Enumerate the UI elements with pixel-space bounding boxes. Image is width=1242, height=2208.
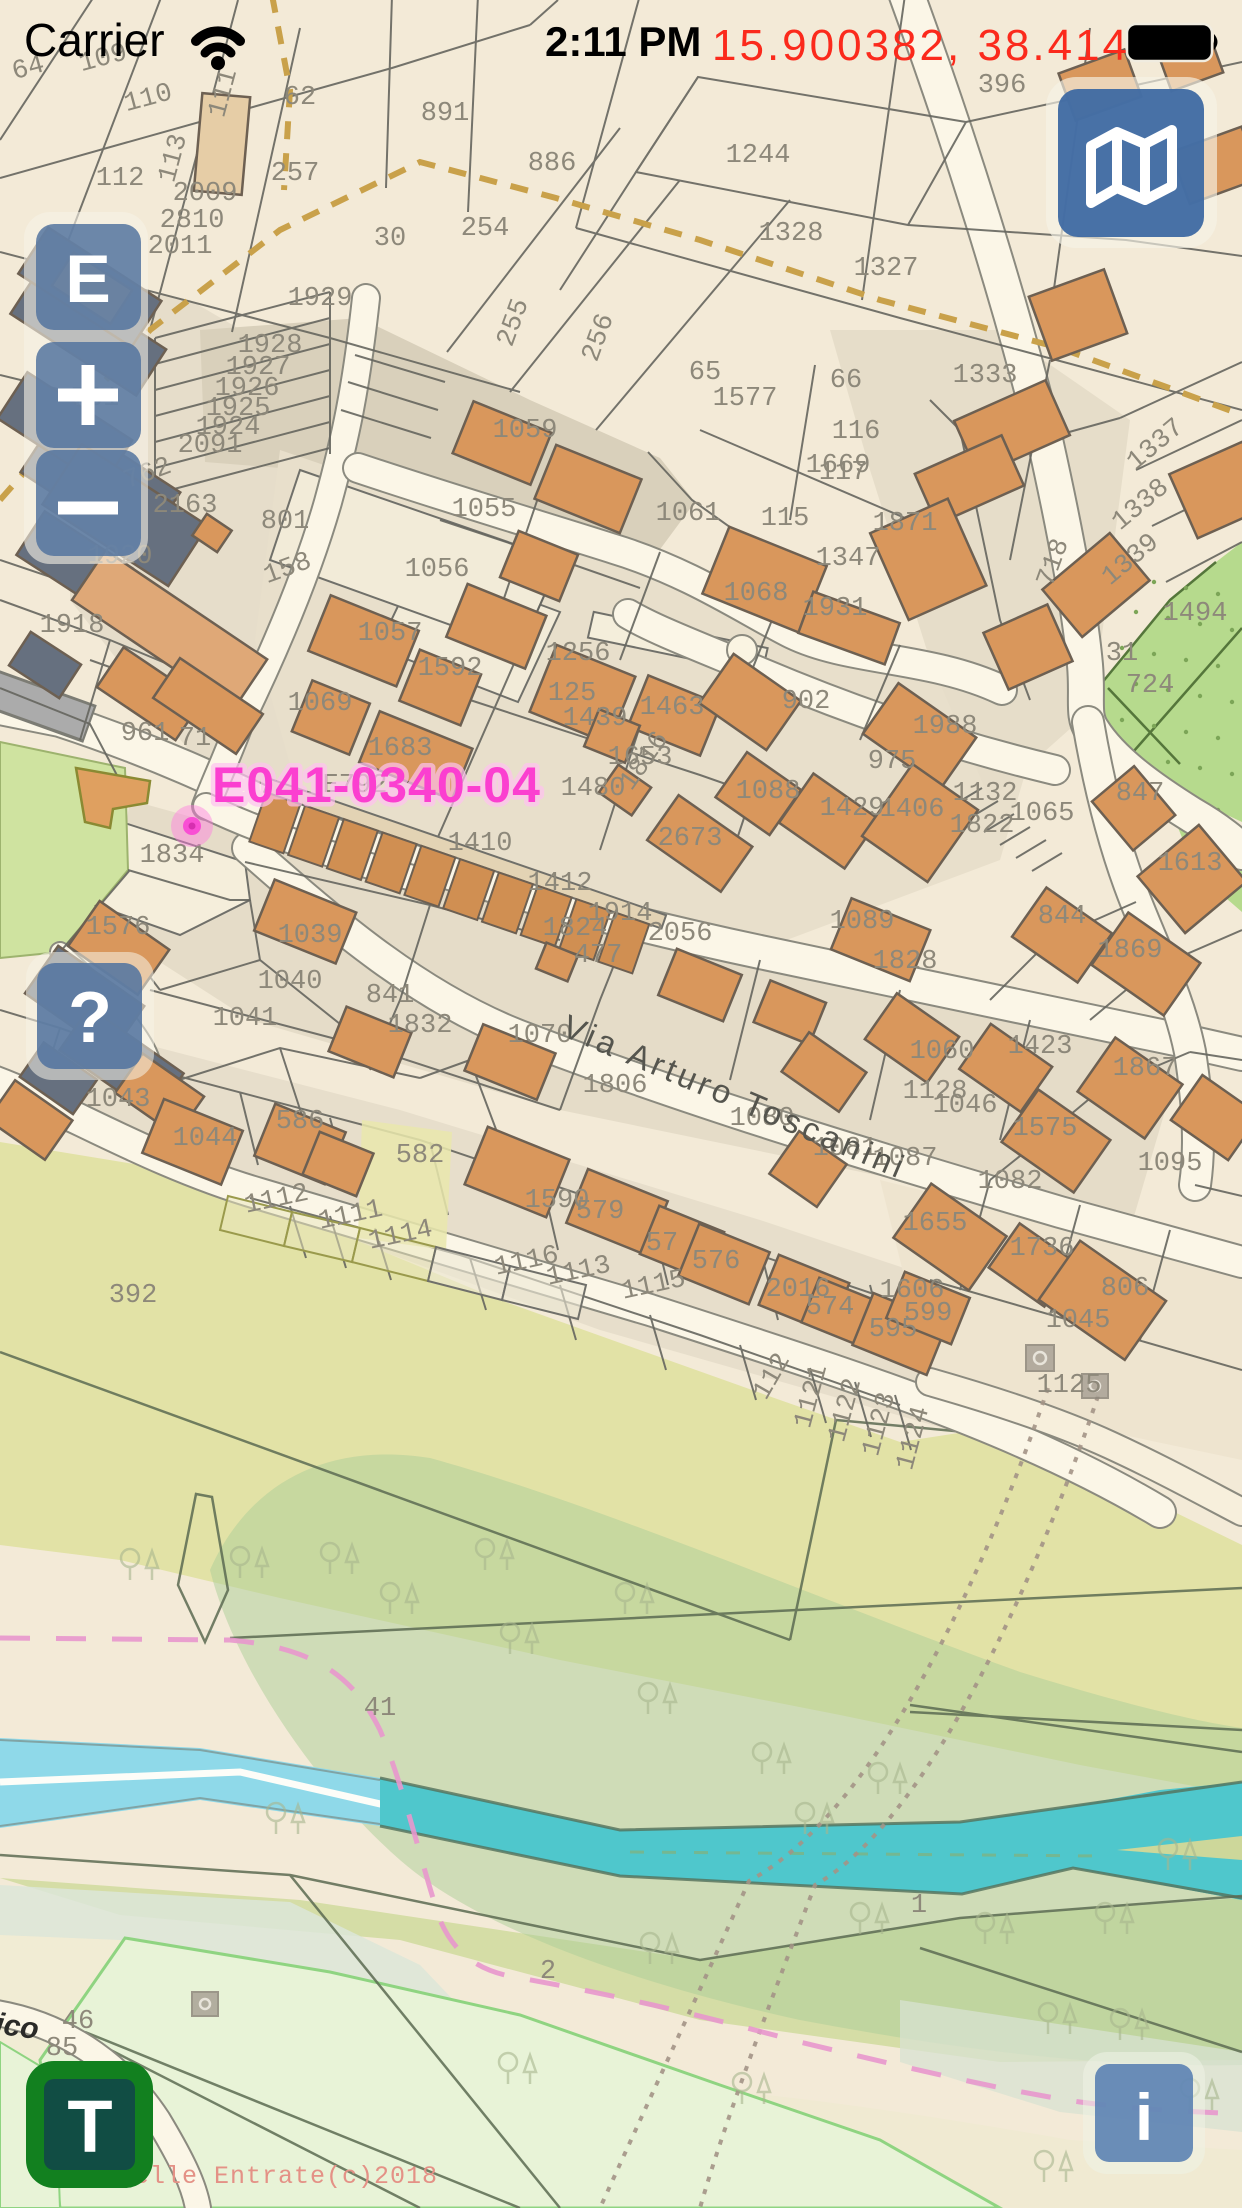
svg-text:85: 85 (46, 2034, 78, 2064)
svg-text:1244: 1244 (726, 141, 791, 171)
svg-text:257: 257 (271, 159, 320, 189)
svg-text:806: 806 (1101, 1274, 1150, 1304)
svg-text:115: 115 (761, 504, 810, 534)
svg-text:1736: 1736 (1010, 1234, 1075, 1264)
svg-text:1132: 1132 (953, 779, 1018, 809)
svg-text:1055: 1055 (452, 495, 517, 525)
svg-text:844: 844 (1038, 902, 1087, 932)
svg-text:1918: 1918 (40, 611, 105, 641)
svg-text:1088: 1088 (736, 777, 801, 807)
svg-text:1575: 1575 (1013, 1114, 1078, 1144)
svg-text:1931: 1931 (803, 594, 868, 624)
svg-text:116: 116 (832, 417, 881, 447)
svg-text:1463: 1463 (640, 693, 705, 723)
svg-text:66: 66 (830, 366, 862, 396)
svg-text:2163: 2163 (153, 491, 218, 521)
svg-text:41: 41 (364, 1694, 396, 1724)
svg-text:1577: 1577 (713, 384, 778, 414)
svg-text:1256: 1256 (546, 639, 611, 669)
svg-text:62: 62 (284, 83, 316, 113)
svg-text:2011: 2011 (148, 232, 213, 262)
svg-text:579: 579 (576, 1197, 625, 1227)
svg-text:841: 841 (366, 981, 415, 1011)
svg-text:1669: 1669 (806, 451, 871, 481)
svg-text:1039: 1039 (278, 921, 343, 951)
svg-text:961: 961 (121, 719, 170, 749)
svg-text:801: 801 (261, 507, 310, 537)
svg-text:?: ? (68, 978, 112, 1058)
svg-text:1429: 1429 (820, 794, 885, 824)
svg-text:586: 586 (276, 1107, 325, 1137)
svg-text:ico: ico (0, 2007, 41, 2046)
svg-text:2009: 2009 (173, 179, 238, 209)
svg-text:886: 886 (528, 149, 577, 179)
svg-text:1406: 1406 (880, 795, 945, 825)
svg-text:1327: 1327 (854, 254, 919, 284)
svg-text:1869: 1869 (1098, 936, 1163, 966)
svg-text:1056: 1056 (405, 555, 470, 585)
svg-text:1045: 1045 (1046, 1306, 1111, 1336)
svg-text:1059: 1059 (493, 416, 558, 446)
svg-text:1480: 1480 (561, 774, 626, 804)
svg-text:1044: 1044 (173, 1124, 238, 1154)
svg-text:2673: 2673 (658, 824, 723, 854)
svg-text:1041: 1041 (213, 1004, 278, 1034)
svg-text:i: i (1135, 2080, 1153, 2154)
svg-text:1: 1 (911, 1891, 927, 1921)
svg-text:1040: 1040 (258, 967, 323, 997)
svg-text:595: 595 (869, 1315, 918, 1345)
svg-text:1082: 1082 (978, 1167, 1043, 1197)
svg-text:574: 574 (806, 1293, 855, 1323)
svg-text:2: 2 (540, 1957, 556, 1987)
svg-text:1046: 1046 (933, 1091, 998, 1121)
svg-text:1069: 1069 (288, 689, 353, 719)
svg-text:576: 576 (692, 1247, 741, 1277)
svg-text:1095: 1095 (1138, 1149, 1203, 1179)
svg-text:46: 46 (62, 2007, 94, 2037)
svg-text:1328: 1328 (759, 219, 824, 249)
svg-text:254: 254 (461, 214, 510, 244)
svg-text:477: 477 (574, 941, 623, 971)
svg-text:1576: 1576 (86, 913, 151, 943)
svg-text:1832: 1832 (388, 1011, 453, 1041)
svg-text:71: 71 (179, 724, 211, 754)
svg-text:1060: 1060 (910, 1037, 975, 1067)
svg-text:2:11 PM: 2:11 PM (545, 18, 701, 65)
svg-text:1929: 1929 (288, 284, 353, 314)
svg-text:30: 30 (374, 224, 406, 254)
svg-text:1828: 1828 (873, 947, 938, 977)
svg-text:1655: 1655 (903, 1209, 968, 1239)
svg-text:1423: 1423 (1008, 1032, 1073, 1062)
svg-text:392: 392 (109, 1281, 158, 1311)
svg-text:1494: 1494 (1163, 599, 1228, 629)
svg-text:1068: 1068 (724, 579, 789, 609)
svg-text:1089: 1089 (830, 907, 895, 937)
svg-text:1065: 1065 (1010, 799, 1075, 829)
svg-text:1822: 1822 (950, 811, 1015, 841)
svg-text:1867: 1867 (1113, 1054, 1178, 1084)
svg-text:1824: 1824 (543, 914, 608, 944)
svg-text:1043: 1043 (86, 1085, 151, 1115)
svg-text:1125: 1125 (1037, 1371, 1102, 1401)
svg-text:1410: 1410 (448, 829, 513, 859)
svg-text:E: E (65, 241, 110, 317)
svg-text:1613: 1613 (1158, 849, 1223, 879)
svg-text:582: 582 (396, 1141, 445, 1171)
svg-text:2091: 2091 (178, 431, 243, 461)
svg-text:1988: 1988 (913, 712, 978, 742)
svg-text:delle Entrate(c)2018: delle Entrate(c)2018 (118, 2162, 438, 2191)
svg-text:1333: 1333 (953, 361, 1018, 391)
svg-text:Carrier: Carrier (24, 14, 165, 66)
svg-text:724: 724 (1126, 671, 1175, 701)
svg-text:891: 891 (421, 99, 470, 129)
svg-text:975: 975 (868, 747, 917, 777)
svg-text:2056: 2056 (648, 919, 713, 949)
svg-text:1592: 1592 (418, 654, 483, 684)
svg-text:396: 396 (978, 71, 1027, 101)
svg-text:E041-0340-04: E041-0340-04 (212, 757, 541, 813)
svg-text:1871: 1871 (873, 509, 938, 539)
svg-text:57: 57 (646, 1229, 678, 1259)
svg-text:31: 31 (1106, 639, 1138, 669)
svg-text:112: 112 (96, 164, 145, 194)
svg-text:1057: 1057 (358, 619, 423, 649)
svg-text:T: T (67, 2085, 112, 2168)
svg-text:1439: 1439 (563, 704, 628, 734)
svg-text:1061: 1061 (656, 499, 721, 529)
svg-text:847: 847 (1116, 779, 1165, 809)
svg-text:1347: 1347 (816, 544, 881, 574)
svg-text:902: 902 (782, 687, 831, 717)
svg-text:1653: 1653 (608, 743, 673, 773)
svg-text:1412: 1412 (528, 869, 593, 899)
